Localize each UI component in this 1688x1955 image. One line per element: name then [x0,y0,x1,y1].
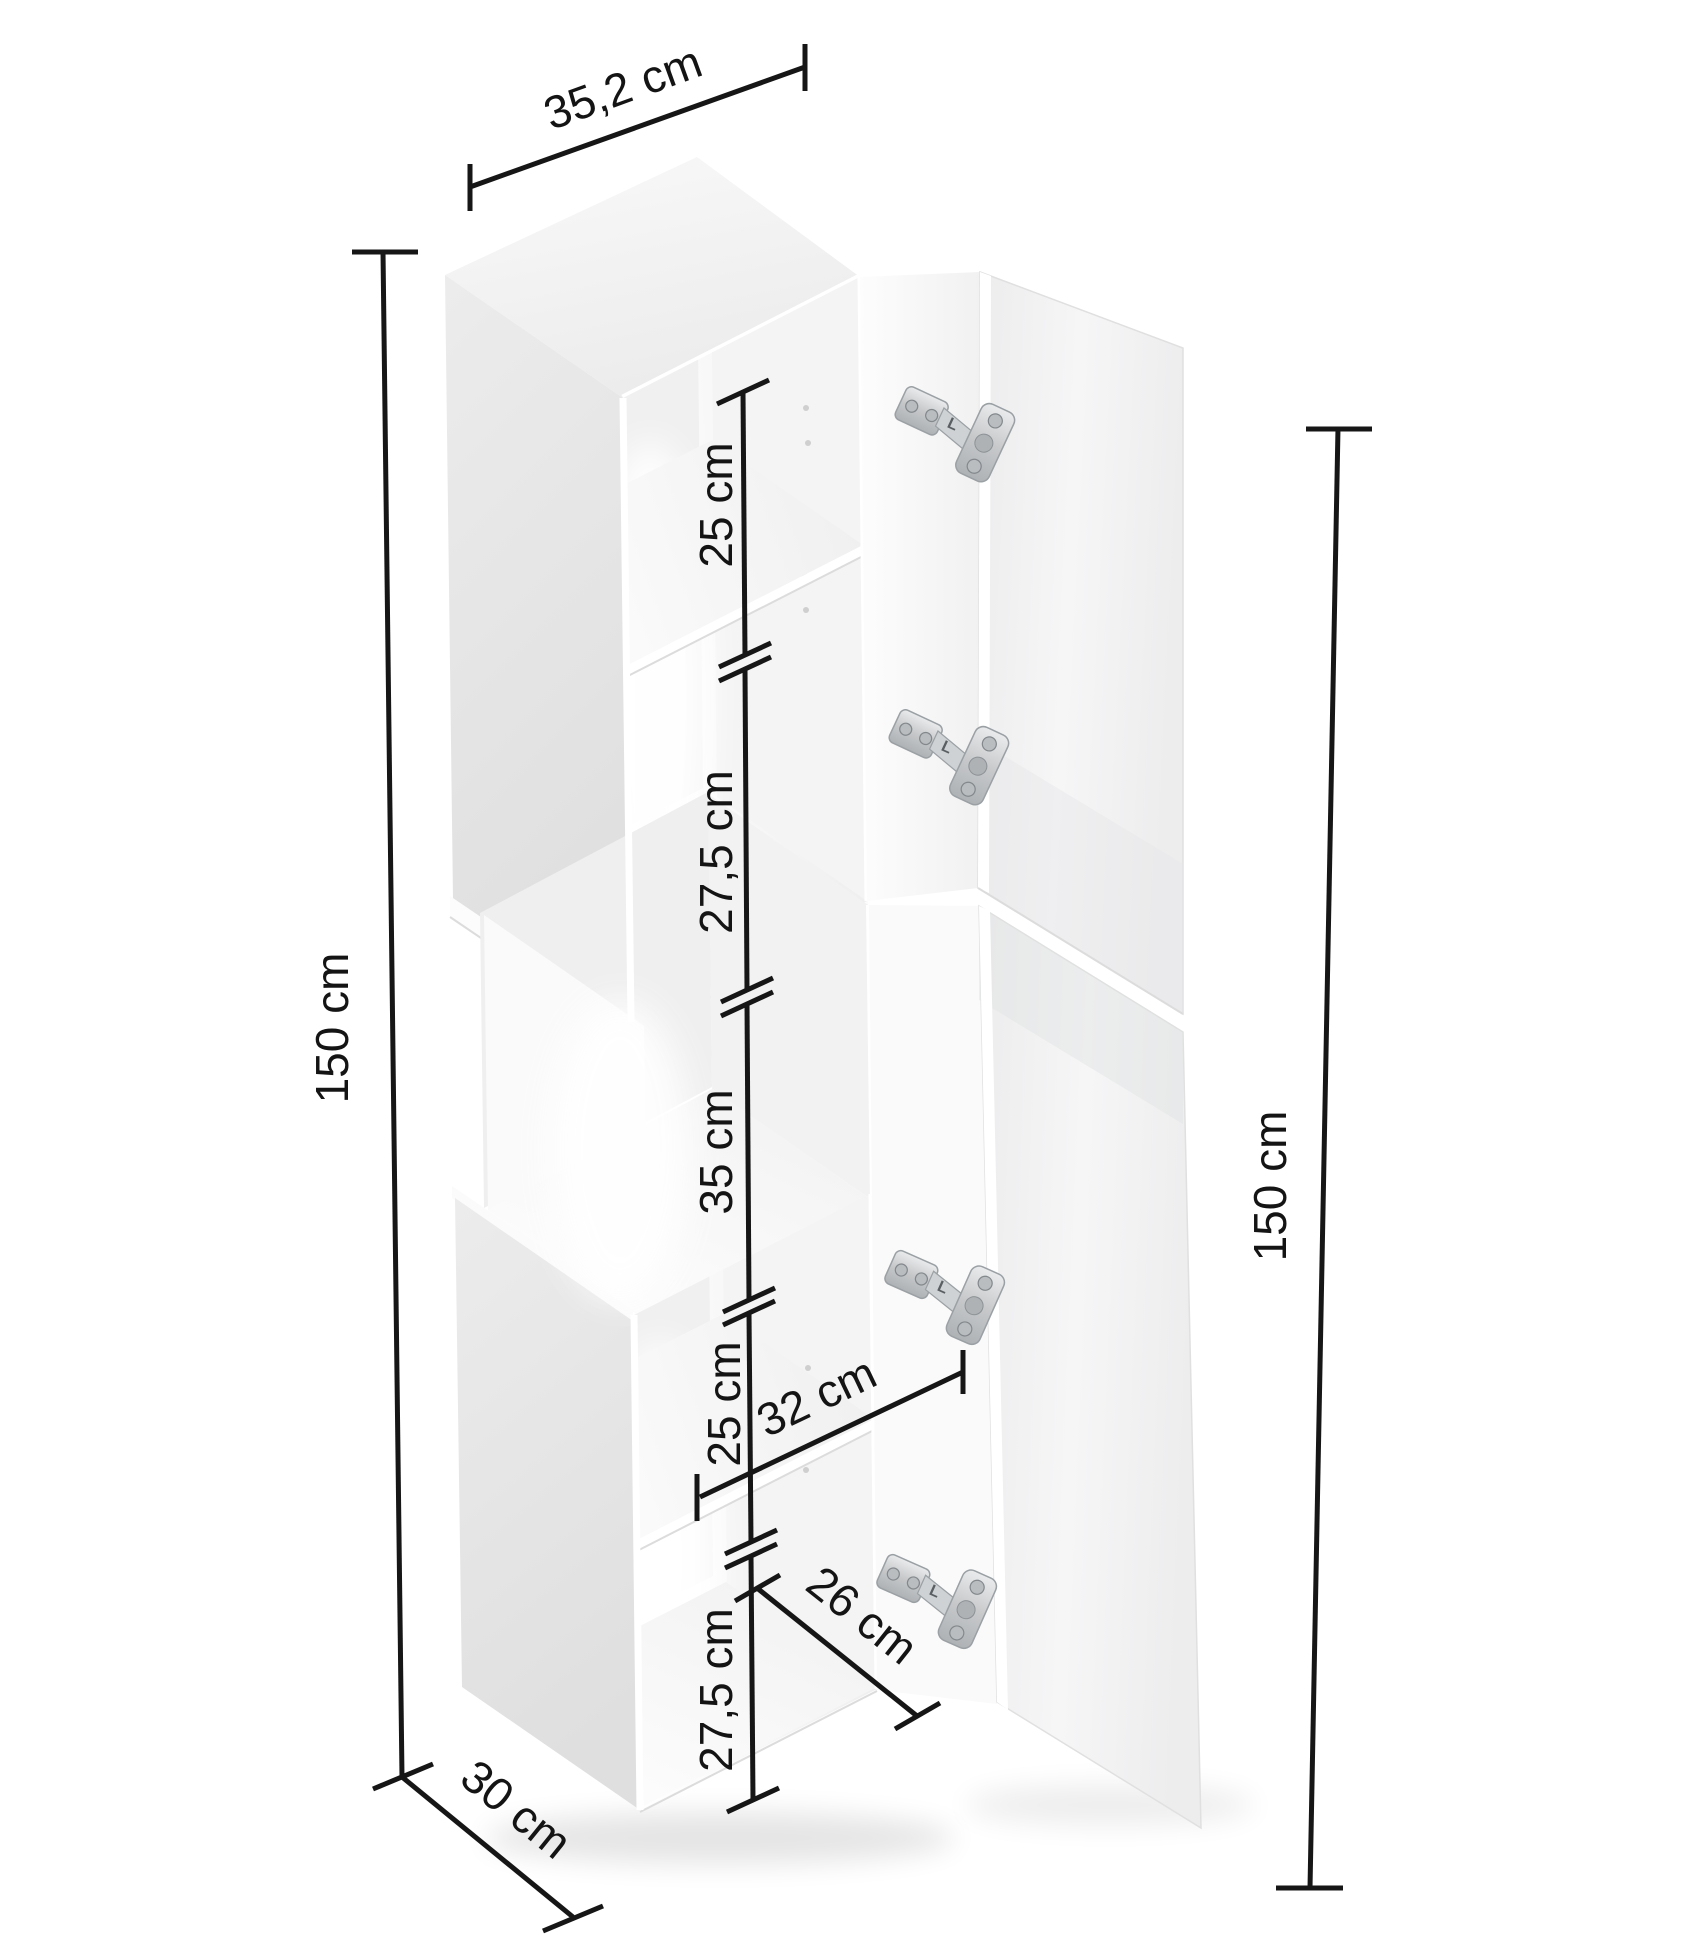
dim-label-compartment-3: 35 cm [690,1089,742,1214]
dim-line [743,392,745,655]
dim-label-compartment-1: 25 cm [690,442,742,567]
cabinet-dimension-drawing: L [0,0,1688,1955]
upper-door [978,272,1183,1014]
shelf-pin-hole [805,440,811,446]
dim-tick [543,1906,603,1931]
dim-label-height-left: 150 cm [306,953,358,1104]
hinge-gap-upper [860,272,980,901]
cabinet-carcass [445,157,877,1812]
shelf-pin-hole [803,405,809,411]
niche-glow [550,1000,690,1300]
shelf-pin-hole [803,607,809,613]
dim-line [383,252,402,1777]
dimension-height-left: 150 cm [306,252,418,1777]
dim-line [1310,428,1338,1888]
shelf-pin-hole [803,1467,809,1473]
dimension-width-top: 35,2 cm [470,35,805,211]
dim-label-height-right: 150 cm [1244,1111,1296,1262]
dim-label-compartment-2: 27,5 cm [690,770,742,934]
dim-line [747,1004,749,1300]
dim-label-compartment-4: 25 cm [698,1341,750,1466]
door-shadow [965,1785,1255,1825]
dimension-diagram: L [0,0,1688,1955]
dim-label-width-top: 35,2 cm [537,35,709,140]
dimension-height-right: 150 cm [1244,428,1372,1888]
dim-label-compartment-5: 27,5 cm [690,1608,742,1772]
dim-line [745,669,747,990]
lower-door [979,906,1201,1828]
